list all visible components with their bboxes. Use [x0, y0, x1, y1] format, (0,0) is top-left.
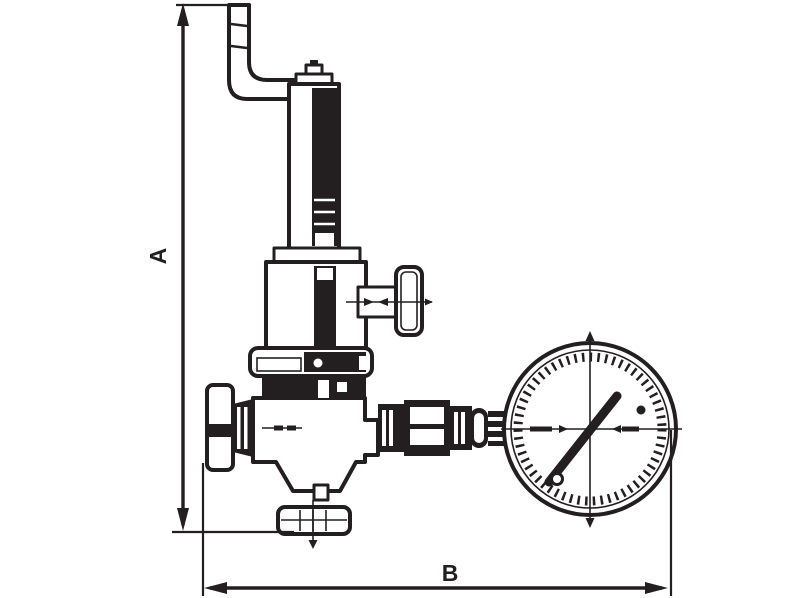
union-window	[410, 407, 444, 424]
gauge-centerline-arrow-bottom	[586, 518, 595, 528]
body-neck-boss	[314, 485, 328, 500]
dimension-b-arrow-left	[204, 582, 227, 594]
outlet-centerline-arrow	[309, 540, 318, 549]
valve-body	[253, 374, 378, 500]
body-outline	[253, 398, 378, 491]
flange-dark-fill	[304, 352, 366, 372]
spring-adjuster-cap	[296, 60, 332, 85]
elbow-pipe-outline	[229, 5, 297, 99]
inlet-nut-slit	[237, 407, 241, 449]
dimension-b-label: B	[442, 560, 459, 586]
dimension-a-label: A	[145, 248, 171, 265]
bonnet	[266, 248, 366, 350]
hex-fitting-slit	[461, 412, 465, 444]
gauge-centerline-dash	[530, 427, 552, 432]
bottom-outlet-flange	[278, 500, 350, 549]
outlet-elbow-pipe	[229, 5, 297, 99]
dimension-b-arrow-right	[645, 582, 668, 594]
handwheel	[396, 267, 422, 335]
hex-fitting-slit	[389, 410, 393, 446]
needle-pivot-circle	[552, 474, 563, 485]
centerline-arrow-tip	[425, 299, 433, 306]
valve-technical-drawing: A B	[0, 0, 800, 598]
spring-housing	[289, 84, 339, 250]
spring-rod	[312, 88, 337, 246]
bonnet-window	[317, 268, 333, 280]
inlet-nut	[233, 399, 253, 457]
pressure-gauge	[501, 331, 682, 528]
valve-assembly	[206, 5, 508, 549]
inlet-nut-slit	[244, 407, 248, 449]
body-band-slit	[318, 380, 329, 398]
body-band-slit	[337, 382, 347, 392]
gauge-set-dot	[637, 406, 646, 415]
pipe-end-window	[474, 413, 484, 443]
dimension-a-arrow-bottom	[177, 508, 189, 531]
flange-slit	[359, 356, 366, 370]
centerline-dash	[274, 426, 283, 431]
drawing-canvas: A B	[0, 0, 800, 598]
centerline-dash	[287, 426, 296, 431]
inlet-cap-band	[206, 424, 234, 437]
union-window	[410, 429, 444, 445]
dimension-a-arrow-top	[177, 3, 189, 26]
flange-port-circle	[314, 359, 323, 368]
hex-fitting-slit	[382, 410, 386, 446]
rod-lower-window	[315, 233, 334, 246]
gauge-centerline-dash	[622, 427, 639, 432]
gauge-connection-piping	[378, 400, 508, 456]
gauge-centerline-arrow-top	[586, 331, 595, 341]
bonnet-top-step	[274, 248, 360, 262]
hex-fitting-slit	[454, 412, 458, 444]
body-top-band	[262, 374, 366, 398]
inlet-port-cap	[206, 385, 253, 470]
body-top-flange	[250, 348, 372, 376]
